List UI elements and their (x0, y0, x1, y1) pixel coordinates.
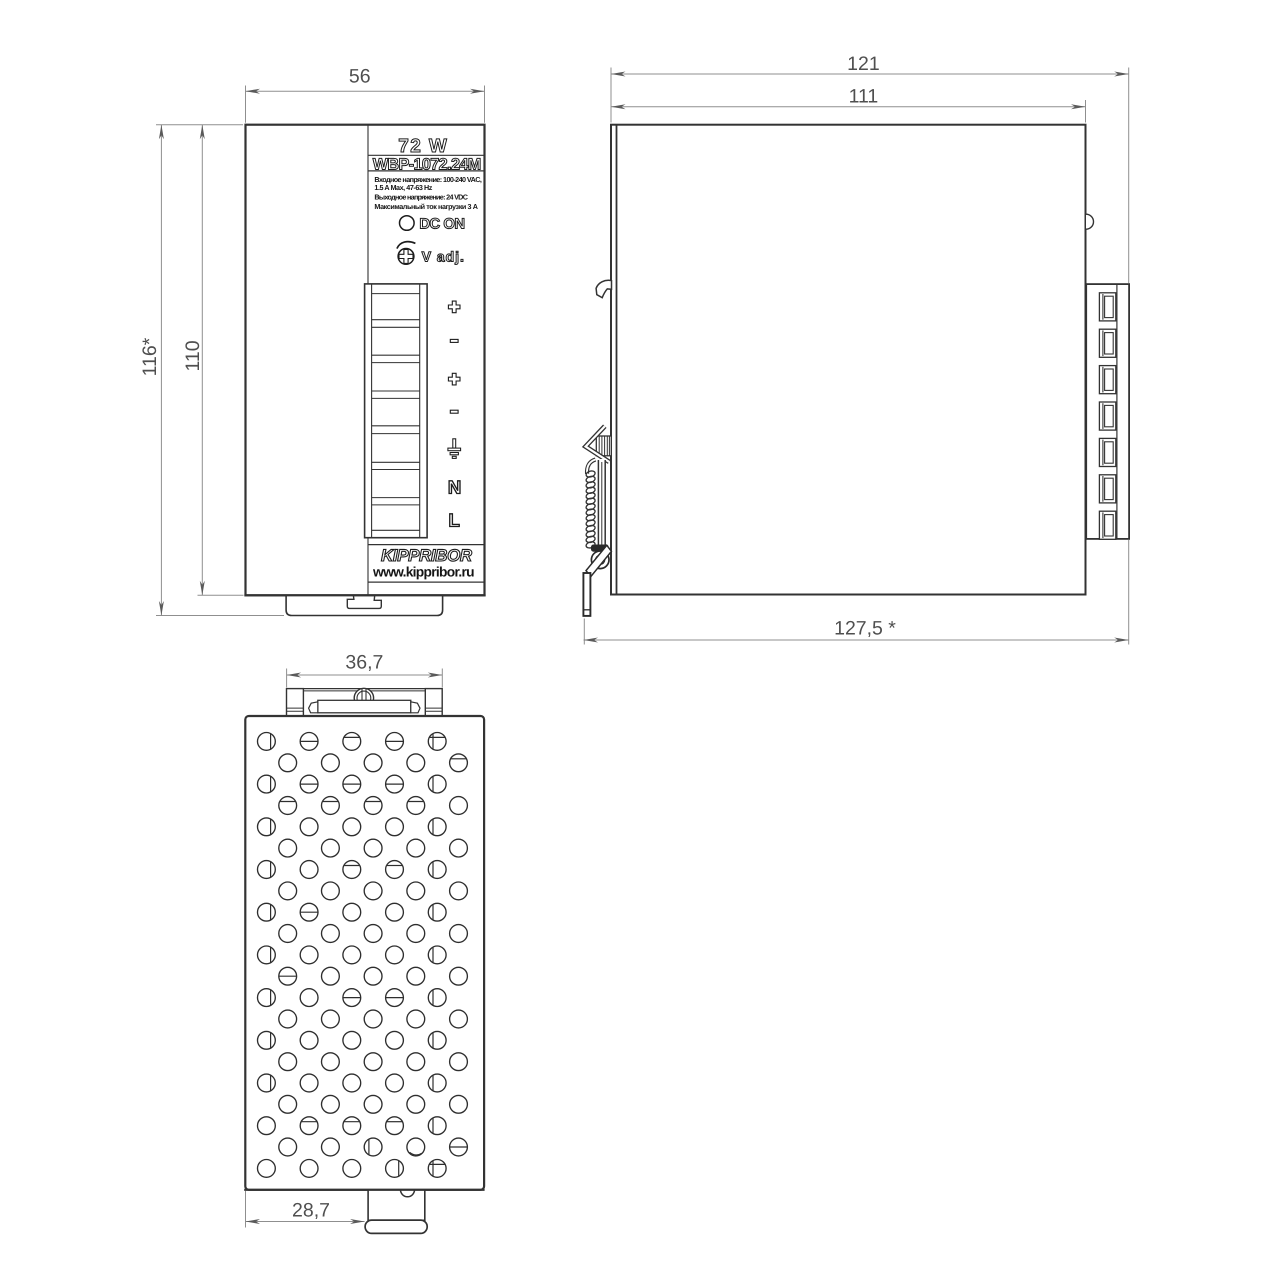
svg-text:Максимальный ток нагрузки 3 A: Максимальный ток нагрузки 3 A (374, 202, 478, 211)
svg-text:72 W: 72 W (398, 136, 447, 157)
svg-text:V adj.: V adj. (422, 250, 464, 266)
svg-text:28,7: 28,7 (292, 1199, 330, 1221)
svg-text:116*: 116* (139, 337, 161, 376)
svg-text:36,7: 36,7 (345, 652, 383, 674)
svg-text:1.5 A Max, 47-63 Hz: 1.5 A Max, 47-63 Hz (374, 183, 432, 192)
svg-text:127,5 *: 127,5 * (834, 618, 896, 640)
svg-text:KIPPRIBOR: KIPPRIBOR (381, 546, 472, 565)
svg-text:www.kippribor.ru: www.kippribor.ru (372, 564, 475, 579)
svg-text:111: 111 (849, 86, 879, 108)
svg-text:56: 56 (349, 65, 371, 87)
svg-text:Выходное напряжение: 24 VDC: Выходное напряжение: 24 VDC (374, 193, 468, 202)
svg-text:L: L (449, 510, 460, 531)
svg-text:110: 110 (182, 340, 204, 371)
svg-text:121: 121 (847, 53, 880, 75)
svg-text:DC ON: DC ON (419, 216, 465, 232)
svg-text:N: N (448, 477, 461, 498)
